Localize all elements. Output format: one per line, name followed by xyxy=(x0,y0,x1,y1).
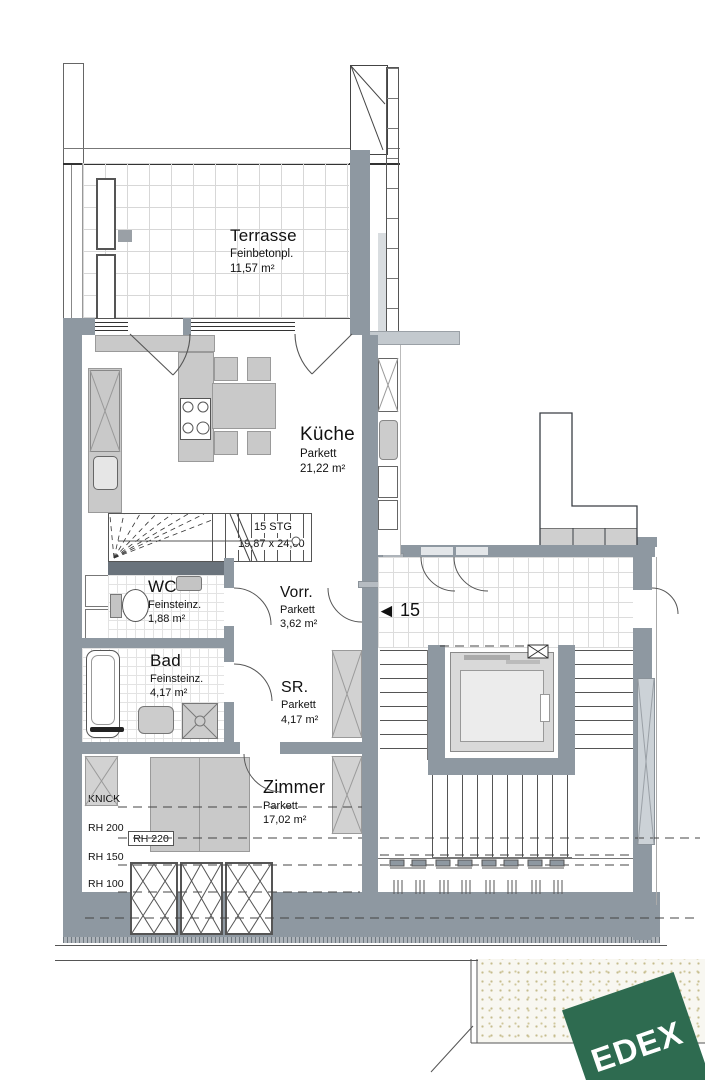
dining-chair-4 xyxy=(247,431,271,455)
bad-name: Bad xyxy=(150,651,203,671)
glass-pane-1 xyxy=(95,322,128,332)
zimmer-closet xyxy=(332,756,362,834)
neighbor-cabinet-2 xyxy=(378,500,398,530)
label-rh220-box: RH 220 xyxy=(128,831,174,846)
kueche-name: Küche xyxy=(300,424,355,446)
vorraum-label: Vorr. Parkett 3,62 m² xyxy=(280,584,317,631)
stair-dimensions-note: 19,87 x 24,00 xyxy=(236,538,307,550)
zimmer-door-gap xyxy=(240,742,280,754)
wc-top-wall xyxy=(108,562,234,575)
entry-door-leaf xyxy=(358,581,380,588)
sr-name: SR. xyxy=(281,679,318,697)
zimmer-finish: Parkett xyxy=(263,800,325,813)
basement-window-symbols xyxy=(390,860,564,894)
edex-logo-text: EDEX xyxy=(586,1014,687,1080)
dining-chair-2 xyxy=(247,357,271,381)
bed-divider xyxy=(199,757,200,852)
zimmer-label: Zimmer Parkett 17,02 m² xyxy=(263,777,325,827)
skylight-1 xyxy=(130,862,178,935)
terrace-door-leaf-upper xyxy=(96,178,116,250)
kueche-label: Küche Parkett 21,22 m² xyxy=(300,424,355,476)
bad-area: 4,17 m² xyxy=(150,687,203,700)
bad-sr-wall-lower xyxy=(224,702,234,742)
terrasse-area: 11,57 m² xyxy=(230,263,297,276)
dining-chair-1 xyxy=(214,357,238,381)
elevator-door-mech-2 xyxy=(506,660,540,664)
shaft-wall-bottom xyxy=(428,758,575,775)
label-rh100: RH 100 xyxy=(88,878,124,890)
facade-window-strip xyxy=(386,67,399,333)
roof-structure xyxy=(350,65,388,155)
neighbor-cabinet-1 xyxy=(378,466,398,498)
wc-bad-wall xyxy=(63,638,234,648)
label-knick: KNICK xyxy=(88,793,120,805)
stair-steps-note: 15 STG xyxy=(252,521,294,533)
elevator-rail xyxy=(540,694,550,722)
label-rh150: RH 150 xyxy=(88,851,124,863)
neighbor-kitchen-outline xyxy=(540,413,637,545)
neighbor-door-gap xyxy=(633,590,652,628)
neighbor-counter-band xyxy=(540,528,637,545)
vorraum-name: Vorr. xyxy=(280,584,317,602)
vorraum-area: 3,62 m² xyxy=(280,618,317,631)
wc-cistern xyxy=(110,594,122,618)
wc-area: 1,88 m² xyxy=(148,613,201,626)
bottom-hatch-band xyxy=(63,937,660,943)
label-rh200: RH 200 xyxy=(88,822,124,834)
sr-closet xyxy=(332,650,362,738)
wc-label: WC Feinsteinz. 1,88 m² xyxy=(148,577,201,626)
facade-line-right xyxy=(656,557,657,905)
neighbor-sink xyxy=(379,420,398,460)
wc-finish: Feinsteinz. xyxy=(148,599,201,612)
outer-wall-left-innerline xyxy=(71,165,72,331)
kitchen-stove xyxy=(180,398,211,440)
skylight-2 xyxy=(180,862,223,935)
stair-flight-right xyxy=(575,650,633,760)
wall-left xyxy=(63,331,82,940)
unit-number: 15 xyxy=(400,600,420,621)
zimmer-area: 17,02 m² xyxy=(263,814,325,827)
neighbor-shower xyxy=(378,358,398,412)
washbasin xyxy=(138,706,174,734)
outer-wall-left-strip xyxy=(63,63,84,332)
wall-right-apartment xyxy=(362,335,378,940)
skylight-3 xyxy=(225,862,273,935)
stair-flight-bottom xyxy=(432,775,572,858)
elevator-door-mech-1 xyxy=(464,655,510,660)
bathtub-inner xyxy=(91,655,115,725)
terrasse-finish: Feinbetonpl. xyxy=(230,248,297,261)
bad-label: Bad Feinsteinz. 4,17 m² xyxy=(150,651,203,700)
elevator-car-inner xyxy=(460,670,544,742)
stairwell-window-band xyxy=(637,678,655,845)
sr-area: 4,17 m² xyxy=(281,714,318,727)
kueche-area: 21,22 m² xyxy=(300,463,355,476)
glass-pane-2 xyxy=(188,322,295,332)
shaft-wall-right xyxy=(558,645,575,775)
wc-toilet xyxy=(122,589,149,622)
kitchen-tall-cabinet xyxy=(90,370,120,452)
shaft-wall-left xyxy=(428,645,445,775)
sr-finish: Parkett xyxy=(281,699,318,712)
terrasse-name: Terrasse xyxy=(230,226,297,246)
wc-name: WC xyxy=(148,577,201,597)
terrasse-label: Terrasse Feinbetonpl. 11,57 m² xyxy=(230,226,297,276)
stair-flight-left xyxy=(380,650,428,760)
bad-finish: Feinsteinz. xyxy=(150,673,203,686)
unit-arrow: ◄ xyxy=(377,601,396,623)
corridor-door-gap-1 xyxy=(421,547,453,555)
dining-chair-3 xyxy=(214,431,238,455)
kueche-finish: Parkett xyxy=(300,448,355,461)
bad-sr-wall-upper xyxy=(224,645,234,662)
stairwell-bottom-line xyxy=(378,858,633,859)
zimmer-top-wall xyxy=(63,742,362,754)
duct-cabinet-1 xyxy=(85,575,109,607)
unit-arrow-glyph: ◄ xyxy=(377,601,396,622)
facade-shading xyxy=(378,233,386,331)
kitchen-sink xyxy=(93,456,118,490)
terrace-fixture xyxy=(118,230,132,242)
vorraum-finish: Parkett xyxy=(280,604,317,617)
wall-arm-right xyxy=(637,537,657,547)
corridor-door-gap-2 xyxy=(456,547,488,555)
sr-label: SR. Parkett 4,17 m² xyxy=(281,679,318,727)
wc-vorraum-wall-upper xyxy=(224,558,234,588)
floor-plan: Terrasse Feinbetonpl. 11,57 m² Küche Par… xyxy=(0,0,705,1080)
corridor-top-wall xyxy=(378,545,655,557)
shower xyxy=(182,703,218,739)
zimmer-name: Zimmer xyxy=(263,777,325,798)
grab-bar xyxy=(90,727,124,732)
dining-table xyxy=(212,383,276,429)
terrace-door-leaf-lower xyxy=(96,254,116,320)
kitchen-counter-top xyxy=(95,335,215,352)
wall-right-upper xyxy=(350,150,370,335)
glass-wall-pier-2 xyxy=(183,318,191,335)
